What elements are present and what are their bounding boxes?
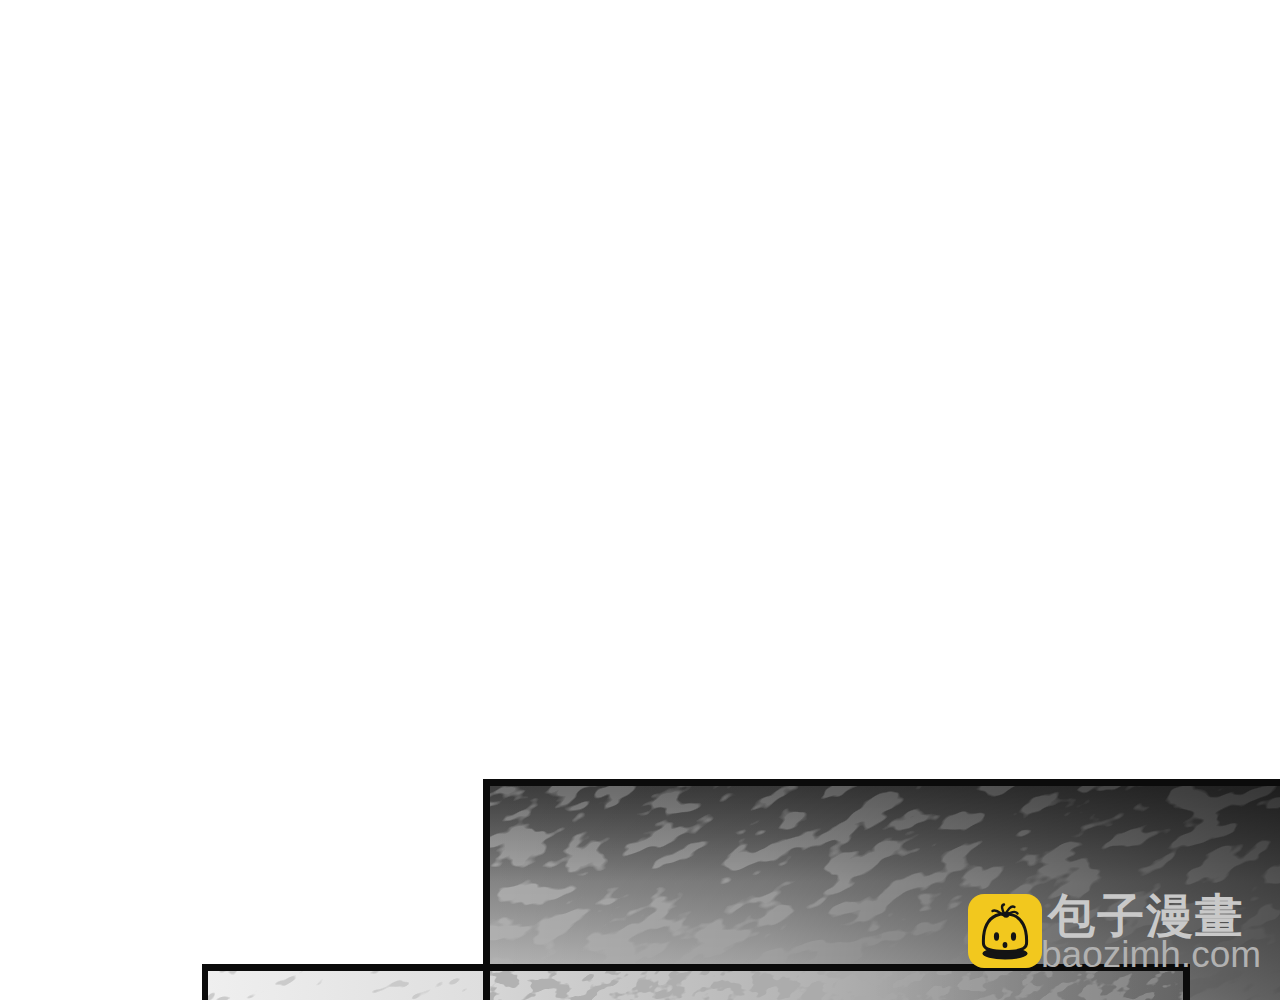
comic-page-canvas: 包子漫畫 baozimh.com	[0, 0, 1280, 1000]
comic-panel-bottom-left	[202, 964, 483, 1000]
speckle-texture	[208, 971, 483, 1000]
comic-panel-bottom-middle	[483, 964, 1190, 1000]
scratch-texture	[490, 971, 1183, 1000]
